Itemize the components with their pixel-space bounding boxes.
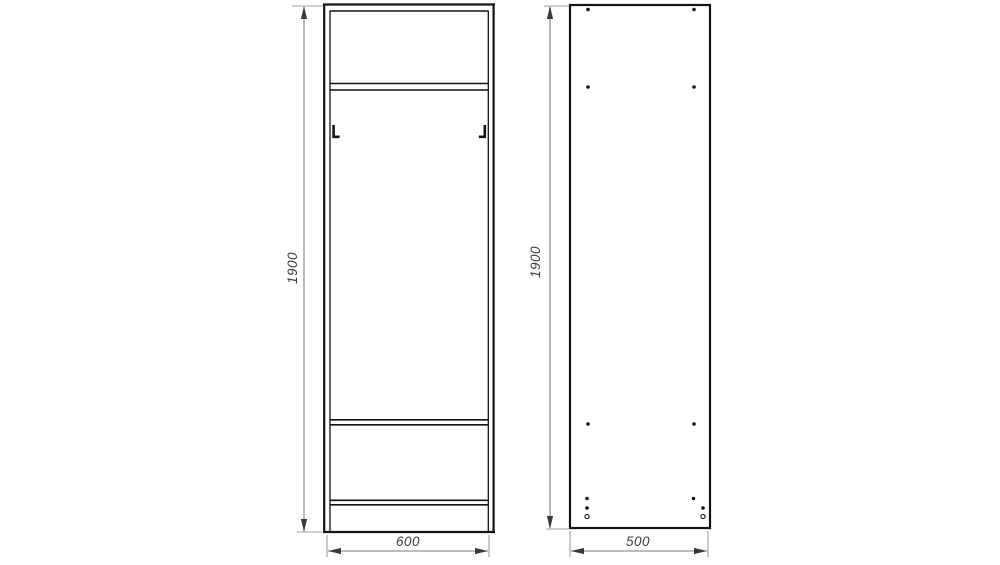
side-fastener-hole-open — [585, 514, 589, 518]
side-fastener-dot — [692, 85, 696, 89]
side-height-dim-label: 1900 — [528, 246, 543, 278]
side-fastener-dot — [692, 422, 696, 426]
side-fastener-dot — [701, 506, 705, 510]
side-fastener-dot — [692, 497, 696, 501]
side-width-dim-label: 500 — [626, 534, 650, 549]
side-width-dimension: 500 — [570, 531, 708, 557]
side-height-dimension: 1900 — [528, 6, 569, 529]
side-fastener-dot — [585, 506, 589, 510]
drawing-svg: 1900 600 1900 — [0, 0, 1000, 565]
front-width-dimension: 600 — [327, 534, 489, 557]
front-rail-bracket-left — [334, 125, 340, 137]
arrowhead-up — [301, 6, 307, 19]
arrowhead-right — [475, 548, 488, 554]
arrowhead-up — [547, 6, 553, 19]
arrowhead-down — [301, 519, 307, 532]
side-fastener-dot — [585, 497, 589, 501]
technical-drawing-canvas: 1900 600 1900 — [0, 0, 1000, 565]
arrowhead-left — [571, 548, 584, 554]
front-height-dim-label: 1900 — [285, 252, 300, 284]
front-height-dimension: 1900 — [285, 6, 323, 532]
arrowhead-down — [547, 516, 553, 529]
arrowhead-left — [328, 548, 341, 554]
side-fastener-hole-open — [701, 514, 705, 518]
side-view — [570, 5, 710, 528]
front-width-dim-label: 600 — [396, 534, 420, 549]
front-view — [323, 4, 495, 533]
side-panel-outline — [570, 5, 710, 528]
side-fastener-dot — [586, 85, 590, 89]
side-fastener-dot — [586, 8, 590, 12]
front-rail-bracket-right — [479, 125, 485, 137]
side-fastener-dot — [692, 8, 696, 12]
dimensions: 1900 600 1900 — [285, 6, 708, 557]
side-fastener-dot — [586, 422, 590, 426]
arrowhead-right — [694, 548, 707, 554]
